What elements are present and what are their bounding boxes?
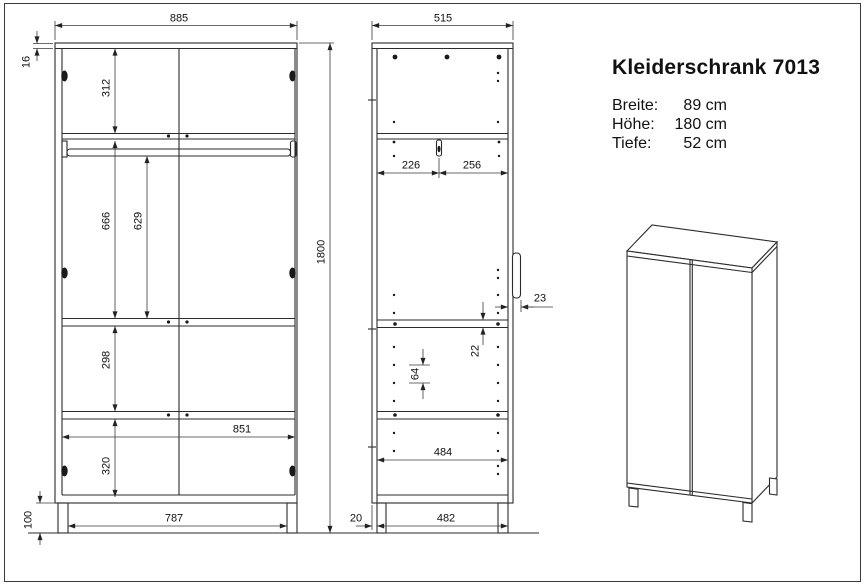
dim-front-total-height: 1800 (317, 239, 328, 265)
spec-value-depth: 52 cm (674, 134, 727, 153)
dim-front-rail-height: 629 (134, 211, 145, 231)
dim-side-rail-to-front: 256 (462, 161, 482, 172)
spec-label-width: Breite: (612, 96, 674, 115)
dim-front-lower-mid: 298 (102, 350, 113, 370)
side-view-dimensions (356, 21, 553, 530)
dim-front-top-section: 312 (102, 78, 113, 98)
spec-label-height: Höhe: (612, 115, 674, 134)
dim-front-outer-width: 885 (169, 14, 189, 25)
front-view (55, 43, 297, 533)
title-block: Kleiderschrank 7013 Breite: 89 cm Höhe: … (612, 56, 842, 153)
dim-side-shelf-thickness: 22 (471, 344, 482, 358)
spec-list: Breite: 89 cm Höhe: 180 cm Tiefe: 52 cm (612, 96, 842, 153)
dim-front-plinth-height: 100 (24, 510, 35, 530)
spec-row-height: Höhe: 180 cm (612, 115, 727, 134)
spec-value-height: 180 cm (674, 115, 727, 134)
drawing-sheet: 885 16 312 666 629 1800 298 851 320 100 … (0, 0, 865, 587)
dim-side-outer-depth: 515 (433, 14, 453, 25)
dim-front-top-thickness: 16 (22, 55, 33, 69)
spec-label-depth: Tiefe: (612, 134, 674, 153)
spec-row-depth: Tiefe: 52 cm (612, 134, 727, 153)
drill-hole-dots (393, 55, 502, 476)
spec-value-width: 89 cm (674, 96, 727, 115)
spec-row-width: Breite: 89 cm (612, 96, 727, 115)
dim-side-hole-pitch: 64 (411, 367, 422, 381)
product-title: Kleiderschrank 7013 (612, 56, 842, 80)
dim-side-handle-offset: 23 (533, 294, 547, 305)
dim-front-leg-span: 787 (164, 514, 184, 525)
handle-profile (513, 253, 521, 298)
dim-side-inner-depth: 484 (433, 448, 453, 459)
dim-side-leg-span: 482 (436, 514, 456, 525)
dim-front-bottom-section: 320 (102, 456, 113, 476)
rail-bracket (437, 140, 442, 156)
side-view (368, 43, 521, 533)
shelf-pin-dots (167, 134, 189, 416)
dim-front-inner-width: 851 (232, 425, 252, 436)
front-view-dimensions (33, 21, 334, 545)
dim-side-back-to-rail: 226 (401, 161, 421, 172)
dim-side-back-leg-offset: 20 (349, 514, 363, 525)
dim-front-mid-section: 666 (102, 211, 113, 231)
perspective-view (627, 225, 777, 522)
